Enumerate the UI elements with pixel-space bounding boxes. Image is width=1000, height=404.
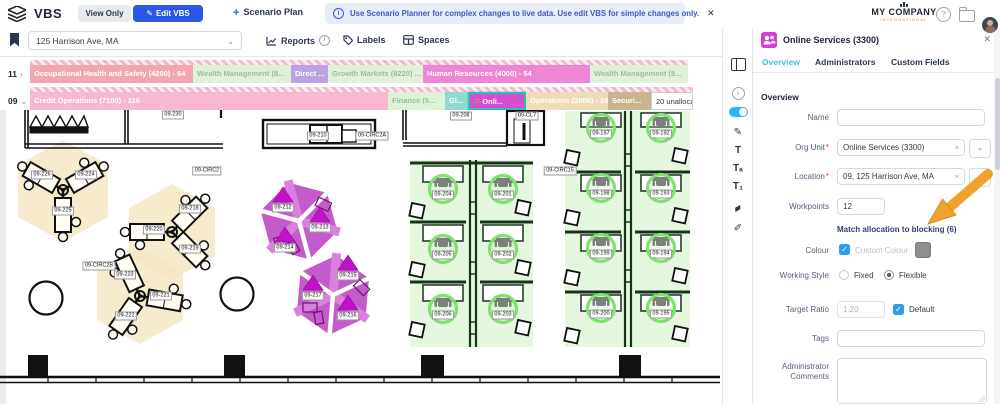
blocking-rows: 11›Occupational Health and Safety (4200)… <box>0 57 722 110</box>
spaces-button[interactable]: Spaces <box>403 35 450 45</box>
bookmark-icon[interactable] <box>9 33 20 47</box>
desk-label[interactable]: 09-218 <box>179 205 201 214</box>
panel-tabs: Overview Administrators Custom Fields <box>753 52 1000 73</box>
desk-label[interactable]: 09-217 <box>302 292 324 301</box>
workpoints-input[interactable]: 12 <box>837 198 885 215</box>
tab-custom-fields[interactable]: Custom Fields <box>891 57 950 67</box>
desk-label[interactable]: 09-198 <box>590 190 612 199</box>
desk-label[interactable]: 09-201 <box>492 191 514 200</box>
blocking-toggle[interactable] <box>723 104 753 122</box>
blocking-segment[interactable]: Securi... <box>608 92 651 110</box>
location-input[interactable]: 09, 125 Harrison Ave, MA × <box>837 168 965 185</box>
default-text: Default <box>909 305 934 314</box>
colour-label: Colour <box>753 246 829 256</box>
desk-label[interactable]: 09-226 <box>31 171 53 180</box>
working-style-label: Working Style <box>753 271 829 281</box>
desk-label[interactable]: 09-214 <box>274 244 296 253</box>
tab-overview[interactable]: Overview <box>762 57 800 67</box>
canvas-tool-strip: i✎TTₐT₁▰✐ <box>722 28 753 404</box>
blocking-segment[interactable]: Wealth Management (8... <box>193 65 291 83</box>
desk-label[interactable]: 09-199 <box>590 250 612 259</box>
eraser-icon[interactable]: ▰ <box>723 198 753 216</box>
match-allocation-link[interactable]: Match allocation to blocking (6) <box>837 225 957 234</box>
org-unit-icon <box>761 32 777 48</box>
panel-scrollbar[interactable] <box>994 28 1000 404</box>
blocking-segment[interactable]: 20 unallocated... <box>651 92 693 110</box>
room-label[interactable]: 09-CL7 <box>515 112 538 121</box>
row-chevron-icon: › <box>20 70 23 79</box>
reports-info-icon: i <box>319 35 330 46</box>
info-icon: i <box>333 8 344 19</box>
desk-label[interactable]: 09-225 <box>52 207 74 216</box>
desk-label[interactable]: 09-194 <box>650 250 672 259</box>
org-unit-input[interactable]: Online Services (3300) × <box>837 139 965 156</box>
desk-label[interactable]: 09-212 <box>272 204 294 213</box>
room-label[interactable]: 09-CIRC2A <box>355 132 388 141</box>
name-label: Name <box>753 113 829 123</box>
floorplan-canvas[interactable]: 09-23009-20809-CL709-21009-CIRC2A09-CIRC… <box>0 110 722 404</box>
blocking-segment[interactable]: Growth Markets (8220) ... <box>328 65 423 83</box>
blocking-segment[interactable]: Operations (2000) - 29 <box>526 92 608 110</box>
desk-label[interactable]: 09-213 <box>309 224 331 233</box>
help-icon[interactable]: ? <box>936 7 951 22</box>
desk-label[interactable]: 09-204 <box>432 191 454 200</box>
org-unit-chevron[interactable]: ⌄ <box>969 139 991 158</box>
desk-label[interactable]: 09-203 <box>492 311 514 320</box>
blocking-bar-11: Occupational Health and Safety (4200) - … <box>30 65 688 83</box>
info-icon[interactable]: i <box>723 82 753 100</box>
info-banner: i Use Scenario Planner for complex chang… <box>325 3 685 24</box>
banner-close-icon[interactable]: ✕ <box>707 8 715 19</box>
pen-icon[interactable]: ✎ <box>723 122 753 140</box>
colour-swatch[interactable] <box>915 242 931 258</box>
desk-label[interactable]: 09-200 <box>590 310 612 319</box>
desk-label[interactable]: 09-202 <box>492 251 514 260</box>
location-chevron[interactable]: ⌄ <box>969 168 991 187</box>
desk-label[interactable]: 09-205 <box>432 251 454 260</box>
flexible-text: Flexible <box>899 271 927 280</box>
plus-icon: + <box>233 7 239 19</box>
tab-administrators[interactable]: Administrators <box>815 57 875 67</box>
room-label[interactable]: 09-CIRC2 <box>192 167 221 176</box>
desk-label[interactable]: 09-195 <box>650 310 672 319</box>
scenario-plan-button[interactable]: +Scenario Plan <box>233 7 303 19</box>
clear-icon[interactable]: × <box>955 169 959 184</box>
fixed-text: Fixed <box>854 271 874 280</box>
label-small-icon[interactable]: T₁ <box>723 176 753 194</box>
blocking-segment[interactable]: ⚠Onli... <box>468 92 526 110</box>
blocking-segment[interactable]: Human Resources (4000) - 54 <box>423 65 590 83</box>
admin-comments-label: Administrator Comments <box>753 362 829 382</box>
banner-text: Use Scenario Planner for complex changes… <box>350 9 699 18</box>
desk-label[interactable]: 09-197 <box>590 130 612 139</box>
tags-label: Tags <box>753 334 829 344</box>
top-bar: VBS View Only ✎Edit VBS +Scenario Plan i… <box>0 0 1000 28</box>
row-chevron-icon: ⌄ <box>20 97 27 106</box>
edit-vbs-button[interactable]: ✎Edit VBS <box>133 5 203 22</box>
custom-colour-checkbox[interactable]: ✓ <box>839 244 850 255</box>
desk-label[interactable]: 09-216 <box>337 312 359 321</box>
label-large-icon[interactable]: T <box>723 140 753 158</box>
room-label[interactable]: 09-230 <box>162 111 184 120</box>
location-label: Location* <box>753 172 829 182</box>
workpoints-label: Workpoints <box>753 202 829 212</box>
warning-icon: ⚠ <box>474 95 480 108</box>
blocking-segment[interactable]: Finance (5... <box>388 92 445 110</box>
desk-label[interactable]: 09-215 <box>337 272 359 281</box>
custom-colour-text: Custom Colour <box>855 246 908 255</box>
user-avatar[interactable] <box>982 17 998 33</box>
desk-label[interactable]: 09-221 <box>150 292 172 301</box>
desk-label[interactable]: 09-220 <box>143 226 165 235</box>
scrollbar-thumb[interactable] <box>995 78 1000 170</box>
tag-icon <box>343 35 353 45</box>
desk-label[interactable]: 09-206 <box>432 311 454 320</box>
org-unit-label: Org Unit* <box>753 143 829 153</box>
desk-label[interactable]: 09-192 <box>650 130 672 139</box>
chevron-down-icon: ⌄ <box>227 32 234 51</box>
admin-comments-textarea[interactable] <box>837 358 987 404</box>
pencil-icon: ✎ <box>146 9 153 18</box>
view-only-button[interactable]: View Only <box>78 5 131 22</box>
desk-label[interactable]: 09-224 <box>75 171 97 180</box>
blocking-segment[interactable]: Occupational Health and Safety (4200) - … <box>30 65 193 83</box>
panel-title: Online Services (3300) <box>783 35 879 45</box>
labels-button[interactable]: Labels <box>343 35 386 45</box>
room-label[interactable]: 09-210 <box>307 132 329 141</box>
building-selector[interactable]: 125 Harrison Ave, MA ⌄ <box>28 31 242 50</box>
floor-row-label-09[interactable]: 09⌄ <box>8 96 27 106</box>
flexible-radio[interactable] <box>884 270 894 280</box>
blocking-segment[interactable]: Direct ... <box>291 65 328 83</box>
room-label[interactable]: 09-CIRC2B <box>82 262 115 271</box>
desk-label[interactable]: 09-223 <box>114 271 136 280</box>
label-medium-icon[interactable]: Tₐ <box>723 158 753 176</box>
blocking-segment[interactable]: Wealth Management (8... <box>590 65 688 83</box>
app-title: VBS <box>34 6 62 21</box>
location-toolbar: 125 Harrison Ave, MA ⌄ Reports i Labels … <box>0 28 722 57</box>
panel-header: Online Services (3300) ✕ <box>753 28 1000 52</box>
fixed-radio[interactable] <box>839 270 849 280</box>
section-heading: Overview <box>761 92 799 102</box>
fill-icon[interactable]: ✐ <box>723 218 753 236</box>
clear-icon[interactable]: × <box>955 140 959 155</box>
chart-icon <box>266 36 277 46</box>
details-panel: Online Services (3300) ✕ Overview Admini… <box>752 28 1000 404</box>
panel-toggle-icon[interactable] <box>723 58 753 76</box>
room-label[interactable]: 09-208 <box>450 112 472 121</box>
blocking-segment[interactable]: Credit Operations (7100) - 116 <box>30 92 388 110</box>
desk-label[interactable]: 09-222 <box>115 312 137 321</box>
default-checkbox[interactable]: ✓ <box>893 304 904 315</box>
desk-label[interactable]: 09-219 <box>179 245 201 254</box>
vbs-logo-icon <box>8 6 26 22</box>
reports-button[interactable]: Reports i <box>266 35 330 46</box>
blocking-segment[interactable]: Gl... <box>445 92 468 110</box>
floor-row-label-11[interactable]: 11› <box>8 69 23 79</box>
blocking-bar-09: Credit Operations (7100) - 116Finance (5… <box>30 92 693 110</box>
desk-label[interactable]: 09-193 <box>650 190 672 199</box>
tags-input[interactable] <box>837 330 985 347</box>
folder-icon[interactable] <box>959 10 975 22</box>
room-label[interactable]: 09-CIRC15 <box>544 167 577 176</box>
target-ratio-input[interactable]: 1.20 <box>837 301 885 318</box>
target-ratio-label: Target Ratio <box>753 305 829 315</box>
grid-icon <box>403 35 414 45</box>
panel-close-icon[interactable]: ✕ <box>983 34 991 45</box>
name-input[interactable] <box>837 109 985 126</box>
